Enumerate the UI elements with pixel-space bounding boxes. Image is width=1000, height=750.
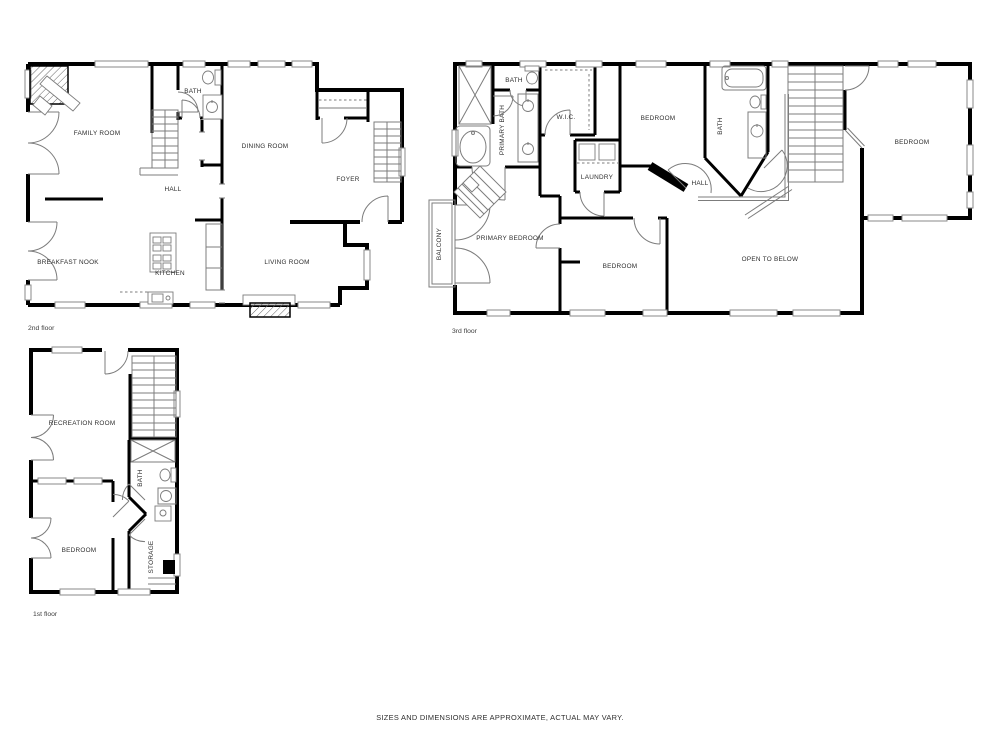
kitchen-island (150, 233, 176, 272)
door-swing (113, 494, 129, 517)
wall (540, 64, 595, 135)
shelf-lines (148, 578, 176, 584)
floorplan-canvas: FAMILY ROOM BATH DINING ROOM FOYER HALL … (0, 0, 1000, 750)
kitchen-sink-icon (148, 292, 173, 304)
window (967, 145, 973, 175)
window (967, 80, 973, 108)
window (868, 215, 893, 221)
door-swing (845, 66, 869, 90)
railing (698, 94, 792, 219)
window (364, 250, 370, 280)
window (878, 61, 898, 67)
window (902, 215, 947, 221)
window (95, 61, 148, 67)
sink-icon (748, 112, 766, 158)
room-label-kitchen: KITCHEN (155, 270, 185, 277)
window (399, 148, 405, 176)
door-opening (557, 224, 563, 248)
washer-dryer-icon (577, 144, 618, 163)
floor-label-third: 3rd floor (452, 328, 478, 335)
door-swing (580, 192, 604, 216)
fireplace-icon (30, 66, 80, 115)
door-swing (322, 118, 347, 143)
wall (31, 350, 177, 592)
room-label-bedroom-bottom: BEDROOM (603, 263, 638, 270)
bathtub-icon (456, 126, 490, 166)
wall (540, 167, 560, 196)
window (772, 61, 788, 67)
toilet-icon (750, 95, 766, 109)
door-opening (102, 347, 128, 353)
window (636, 61, 666, 67)
wall-opening (219, 290, 225, 303)
room-label-primary-bedroom: PRIMARY BEDROOM (476, 235, 543, 242)
water-heater-icon (163, 560, 175, 574)
room-label-storage: STORAGE (148, 541, 155, 574)
sink-icon (203, 95, 222, 119)
toilet-icon (160, 468, 176, 482)
french-door (28, 112, 59, 174)
window (118, 589, 150, 595)
closet-rod (545, 70, 592, 130)
window (183, 61, 205, 67)
room-label-laundry: LAUNDRY (581, 174, 614, 181)
window (487, 310, 510, 316)
window (298, 302, 330, 308)
staircase (132, 356, 176, 437)
toilet-icon (525, 66, 539, 84)
room-label-recreation-room: RECREATION ROOM (49, 420, 116, 427)
window (258, 61, 285, 67)
sink-icon (158, 488, 176, 504)
wall-opening (74, 478, 102, 484)
utility-sink-icon (155, 506, 171, 521)
third-floor-plan: BATH PRIMARY BATH W.I.C. BEDROOM BATH LA… (429, 61, 973, 335)
floorplan-page: FAMILY ROOM BATH DINING ROOM FOYER HALL … (0, 0, 1000, 750)
french-door (28, 222, 57, 280)
window (730, 310, 777, 316)
room-label-hall-3rd: HALL (692, 180, 709, 187)
room-label-living-room: LIVING ROOM (264, 259, 309, 266)
angled-window (845, 128, 865, 148)
window (967, 192, 973, 208)
window (908, 61, 936, 67)
window (60, 589, 95, 595)
double-vanity-icon (518, 94, 538, 162)
door-opening (199, 132, 205, 160)
room-label-open-to-below: OPEN TO BELOW (742, 256, 799, 263)
door-swing (105, 351, 128, 374)
door-swing (634, 218, 660, 244)
door-opening (320, 115, 344, 121)
room-label-foyer: FOYER (336, 176, 359, 183)
door-swing (748, 150, 787, 192)
floor-label-second: 2nd floor (28, 325, 55, 332)
entry-door-swing (362, 196, 388, 222)
door-opening (175, 90, 181, 112)
bed-icon (454, 166, 506, 218)
room-label-wic: W.I.C. (557, 114, 576, 121)
window (570, 310, 605, 316)
shower-icon (459, 66, 491, 124)
window (793, 310, 840, 316)
room-label-bath: BATH (184, 88, 202, 95)
window (25, 285, 31, 300)
room-label-family-room: FAMILY ROOM (74, 130, 121, 137)
angled-wall (650, 166, 686, 188)
room-label-breakfast-nook: BREAKFAST NOOK (37, 259, 99, 266)
window (643, 310, 667, 316)
window (174, 391, 180, 417)
disclaimer-text: SIZES AND DIMENSIONS ARE APPROXIMATE, AC… (376, 713, 624, 722)
second-floor-plan: FAMILY ROOM BATH DINING ROOM FOYER HALL … (25, 61, 405, 332)
wall (455, 64, 970, 313)
room-label-bedroom-right: BEDROOM (895, 139, 930, 146)
living-room-fireplace-icon (243, 295, 295, 317)
wall (340, 222, 367, 305)
room-label-bath-1st: BATH (137, 469, 144, 487)
window (576, 61, 602, 67)
wall-opening (38, 478, 66, 484)
window (190, 302, 215, 308)
wall-opening (219, 184, 225, 198)
wall (129, 440, 146, 592)
room-label-bedroom-1st: BEDROOM (62, 547, 97, 554)
window (452, 130, 458, 156)
window (52, 347, 82, 353)
staircase (788, 66, 843, 182)
room-label-bath-top: BATH (505, 77, 523, 84)
bathtub-icon (722, 66, 766, 90)
window (55, 302, 85, 308)
first-floor-plan: RECREATION ROOM BATH BEDROOM STORAGE 1st… (28, 347, 180, 618)
floor-label-first: 1st floor (33, 611, 58, 618)
room-label-dining-room: DINING ROOM (242, 143, 289, 150)
shower-icon (131, 440, 175, 462)
window (292, 61, 312, 67)
room-label-bedroom-top: BEDROOM (641, 115, 676, 122)
room-label-bath-right: BATH (717, 117, 724, 135)
french-door (455, 205, 490, 283)
window (228, 61, 250, 67)
toilet-icon (203, 70, 222, 85)
staircase (140, 110, 178, 175)
room-label-balcony: BALCONY (436, 227, 443, 260)
room-label-hall: HALL (165, 186, 182, 193)
foyer-staircase (374, 122, 401, 182)
room-label-primary-bath: PRIMARY BATH (499, 105, 506, 155)
door-opening (182, 115, 200, 121)
